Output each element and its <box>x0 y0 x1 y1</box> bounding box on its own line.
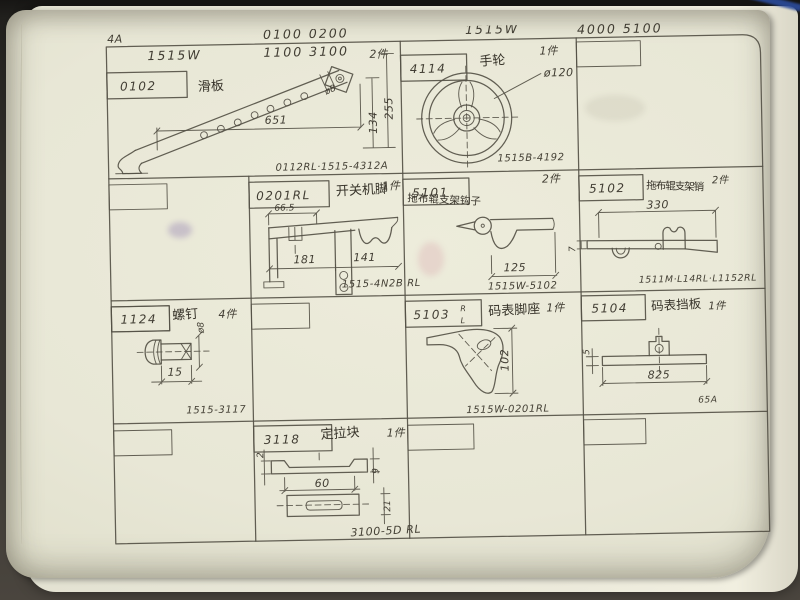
part-no: 0102 <box>120 79 157 94</box>
empty-box-row4-col3 <box>584 419 646 445</box>
dim-2: 2 <box>256 452 266 458</box>
cell-0102: 0102 滑板 2件 651 134 <box>106 47 396 177</box>
part-qty: 2件 <box>542 172 561 185</box>
dim-9: 9 <box>371 468 381 474</box>
part-code: 1515W-0201RL <box>466 403 550 416</box>
part-no: 1124 <box>120 312 157 327</box>
parts-table-svg: 4A 0100 0200 1100 3100 1515W 1515W 4000 … <box>103 20 775 578</box>
dim-21: 21 <box>383 500 393 512</box>
slide-holes <box>200 93 309 139</box>
dim-dia: ø120 <box>543 66 574 80</box>
part-qty: 1件 <box>539 44 558 57</box>
part-label: 码表脚座 <box>488 301 541 320</box>
cell-5101: 5101 拖布辊支架钩子 2件 125 1515W-5102 <box>403 172 563 294</box>
part-no: 4114 <box>410 61 447 76</box>
part-no: 5104 <box>591 301 628 316</box>
cell-5102: 5102 拖布辊支架销 2件 330 7 1511M·L14RL·L1152RL <box>567 173 757 288</box>
empty-box-row2-col1 <box>109 184 167 210</box>
dim-7: 7 <box>568 246 578 252</box>
dim-255: 255 <box>382 97 395 120</box>
cell-1124: 1124 螺钉 4件 15 ø8 1515-3117 <box>111 304 246 418</box>
dim-651: 651 <box>265 113 288 126</box>
part-label: 开关机脚 <box>336 181 389 200</box>
cell-5104: 5104 码表挡板 1件 825 5 65A <box>581 293 729 408</box>
empty-box-row4-col2 <box>408 424 474 450</box>
dim-66-5: 66.5 <box>274 203 295 213</box>
part-code: 1511M·L14RL·L1152RL <box>639 272 757 285</box>
empty-box-row1-col3 <box>576 41 640 67</box>
part-no: 0201RL <box>256 188 311 203</box>
part-code: 1515-4N2B RL <box>342 278 421 291</box>
part-qty: 1件 <box>546 301 565 314</box>
part-label: 手轮 <box>479 53 506 70</box>
part-qty: 2件 <box>712 174 730 186</box>
page-curve-line <box>20 24 24 544</box>
part-qty: 4件 <box>218 307 237 320</box>
cell-4114: 4114 手轮 1件 ø120 1515B-4192 <box>400 44 575 171</box>
parts-table: 4A 0100 0200 1100 3100 1515W 1515W 4000 … <box>103 20 775 578</box>
dim-102: 102 <box>498 349 511 372</box>
dim-141: 141 <box>353 251 376 264</box>
dim-134: 134 <box>367 111 380 134</box>
part-qty: 1件 <box>382 179 401 192</box>
part-code: 1515-3117 <box>186 404 246 416</box>
cell-0201rl: 0201RL 开关机脚 1件 66.5 181 141 1515-4N2B RL <box>249 179 421 296</box>
part-no-suffix-r: R <box>460 304 466 313</box>
part-code: 0112RL·1515-4312A <box>276 161 389 174</box>
part-label: 拖布辊支架销 <box>646 179 704 194</box>
part-qty: 2件 <box>369 48 388 61</box>
part-code: 1515B-4192 <box>497 152 564 164</box>
part-no: 3118 <box>264 432 301 447</box>
dim-330: 330 <box>646 198 669 211</box>
dim-5: 5 <box>582 349 592 355</box>
empty-part-boxes <box>106 41 648 456</box>
dim-825: 825 <box>648 368 671 381</box>
dim-125: 125 <box>503 261 526 274</box>
part-code: 3100-5D RL <box>350 523 421 540</box>
header-models-right: 4000 5100 <box>577 20 663 37</box>
pin-drawing <box>576 207 719 258</box>
page-number: 4A <box>107 33 123 46</box>
part-code: 1515W-5102 <box>488 280 558 292</box>
cell-3118: 3118 定拉块 1件 60 9 21 2 3100-5D RL <box>254 423 422 541</box>
part-label: 螺钉 <box>172 307 199 324</box>
part-label: 滑板 <box>198 79 225 95</box>
cell-5103: 5103 R L 码表脚座 1件 102 1515W-0201RL <box>405 298 567 417</box>
empty-box-row4-col1 <box>114 430 172 456</box>
dim-15: 15 <box>167 366 182 379</box>
book-photo: 4A 0100 0200 1100 3100 1515W 1515W 4000 … <box>0 0 800 600</box>
part-no: 5103 <box>413 307 450 322</box>
dim-d8: ø8 <box>197 322 207 335</box>
part-label: 码表挡板 <box>651 296 702 314</box>
part-no: 5102 <box>589 181 626 196</box>
part-label: 定拉块 <box>320 425 360 443</box>
dim-181: 181 <box>293 253 316 266</box>
table-grid <box>106 34 769 543</box>
part-qty: 1件 <box>708 300 727 312</box>
dim-60: 60 <box>315 477 330 490</box>
header-models-bottom-left: 1100 3100 <box>263 43 349 60</box>
part-no-suffix-l: L <box>461 316 466 325</box>
header-machine-left: 1515W <box>147 47 201 63</box>
part-code: 65A <box>698 395 718 405</box>
empty-box-row3-col1c <box>251 303 309 329</box>
part-qty: 1件 <box>387 426 406 439</box>
